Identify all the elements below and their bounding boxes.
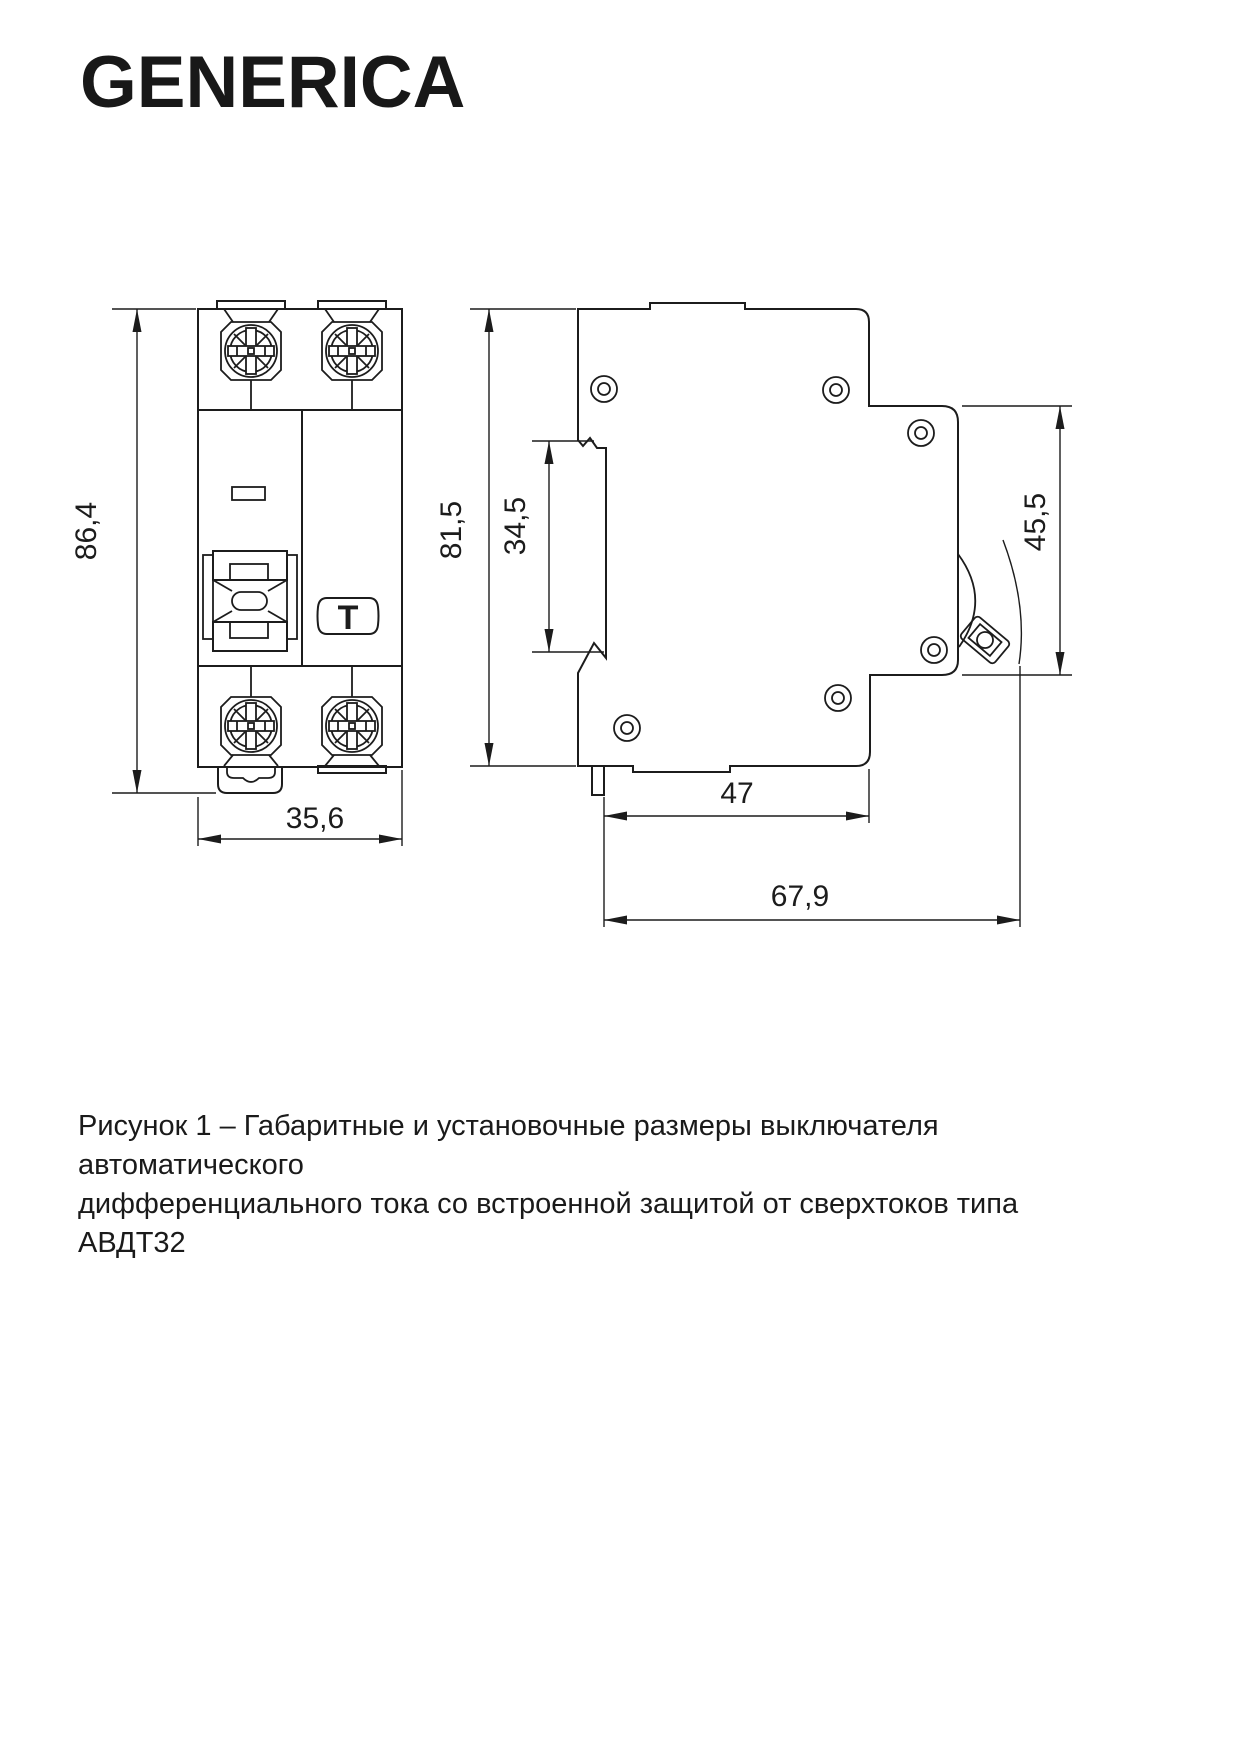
dim-front-width: 35,6 — [198, 770, 402, 846]
caption-line-1: Рисунок 1 – Габаритные и установочные ра… — [78, 1107, 1038, 1185]
front-view: T — [70, 301, 402, 846]
indicator-window — [232, 487, 265, 500]
dim-din-recess: 34,5 — [499, 441, 604, 652]
rivet — [614, 715, 640, 741]
rivet — [823, 377, 849, 403]
terminal-screw — [322, 322, 382, 380]
figure-caption: Рисунок 1 – Габаритные и установочные ра… — [78, 1107, 1038, 1263]
document-page: GENERICA — [0, 0, 1238, 1757]
dim-front-width-label: 35,6 — [286, 802, 344, 835]
dim-depth-total-label: 67,9 — [771, 880, 829, 913]
caption-line-2: дифференциального тока со встроенной защ… — [78, 1185, 1038, 1263]
dim-depth-total: 67,9 — [604, 666, 1020, 927]
rivet — [921, 637, 947, 663]
bottom-terminals — [221, 666, 386, 773]
terminal-screw — [221, 322, 281, 380]
dim-front-height: 86,4 — [70, 309, 216, 793]
toggle-lever — [203, 551, 297, 651]
din-clip — [218, 766, 282, 793]
dim-side-height-label: 81,5 — [435, 501, 468, 559]
dim-depth-body: 47 — [604, 769, 869, 927]
side-body-outline — [578, 303, 958, 772]
terminal-screw — [322, 697, 382, 755]
dim-depth-body-label: 47 — [720, 777, 753, 810]
dim-din-recess-label: 34,5 — [499, 497, 532, 555]
side-toggle-lever — [958, 540, 1021, 665]
side-view: 81,5 34,5 45,5 — [435, 303, 1072, 927]
dim-front-height-label: 86,4 — [70, 502, 103, 560]
rivet — [825, 685, 851, 711]
din-clip-pin — [592, 766, 604, 795]
dimension-drawing: T — [0, 0, 1238, 990]
rivet — [908, 420, 934, 446]
test-button: T — [318, 598, 379, 637]
test-button-label: T — [338, 599, 359, 637]
rivet — [591, 376, 617, 402]
lever-swing-arc — [1003, 540, 1021, 664]
top-terminals — [217, 301, 386, 410]
dim-front-panel-label: 45,5 — [1019, 493, 1052, 551]
terminal-screw — [221, 697, 281, 755]
